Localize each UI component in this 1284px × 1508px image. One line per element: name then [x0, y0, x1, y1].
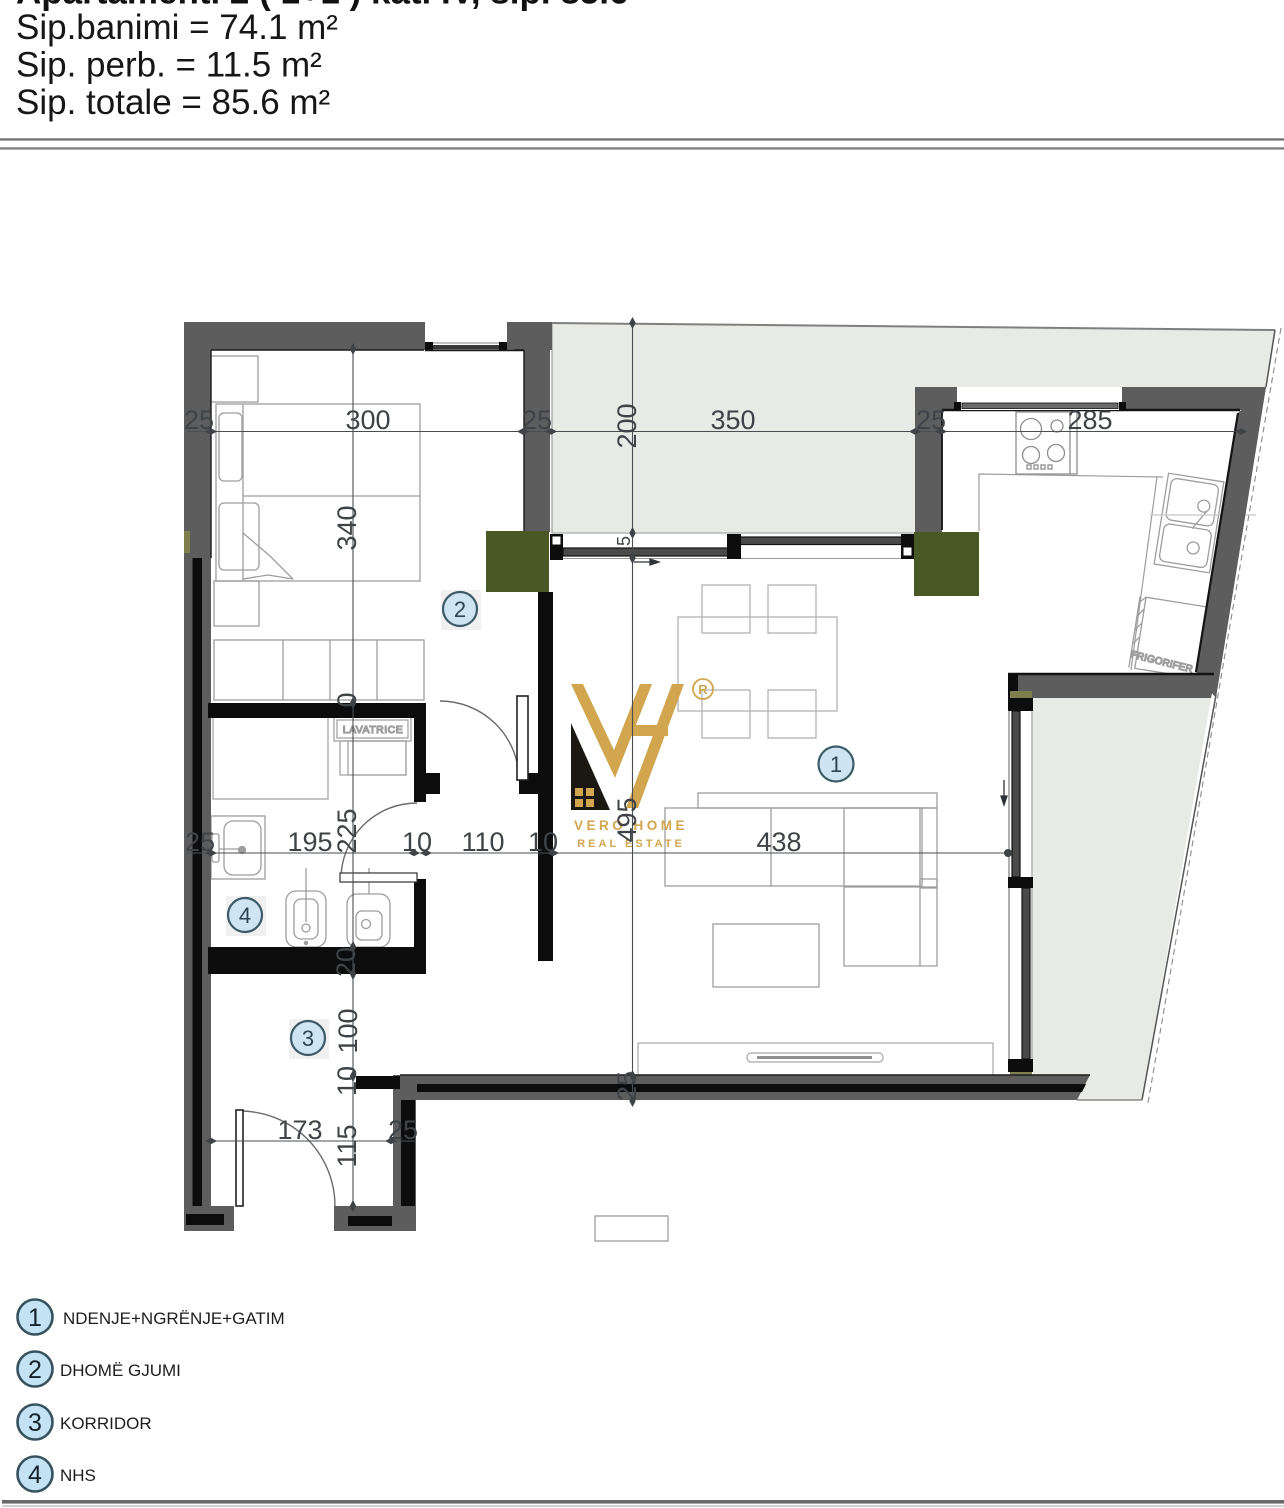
svg-text:25: 25	[612, 1071, 642, 1101]
svg-text:KORRIDOR: KORRIDOR	[60, 1414, 152, 1433]
svg-text:350: 350	[710, 405, 755, 435]
svg-text:25: 25	[388, 1115, 418, 1145]
svg-text:0: 0	[332, 692, 362, 707]
svg-text:10: 10	[332, 1066, 362, 1096]
svg-text:115: 115	[332, 1124, 362, 1167]
svg-text:Sip. perb. = 11.5 m²: Sip. perb. = 11.5 m²	[16, 46, 322, 85]
svg-text:3: 3	[302, 1026, 314, 1051]
svg-text:195: 195	[287, 827, 332, 857]
svg-text:R: R	[698, 682, 708, 697]
svg-text:10: 10	[528, 827, 558, 857]
svg-text:173: 173	[277, 1115, 322, 1145]
svg-text:100: 100	[333, 1008, 363, 1053]
svg-text:340: 340	[332, 505, 362, 550]
svg-text:Sip.banimi = 74.1 m²: Sip.banimi = 74.1 m²	[16, 8, 338, 47]
svg-text:3: 3	[28, 1409, 42, 1437]
svg-text:2: 2	[28, 1356, 42, 1384]
svg-text:DHOMË GJUMI: DHOMË GJUMI	[60, 1361, 181, 1380]
svg-text:495: 495	[612, 797, 642, 842]
svg-text:25: 25	[185, 827, 215, 857]
svg-text:10: 10	[402, 827, 432, 857]
svg-text:438: 438	[756, 827, 801, 857]
svg-text:NHS: NHS	[60, 1466, 96, 1485]
svg-text:FRIGORIFER: FRIGORIFER	[1129, 649, 1193, 675]
svg-text:2: 2	[454, 597, 466, 622]
svg-text:LAVATRICE: LAVATRICE	[343, 724, 404, 736]
svg-text:285: 285	[1067, 405, 1112, 435]
svg-text:25: 25	[184, 405, 214, 435]
svg-text:4: 4	[239, 903, 251, 928]
svg-text:1: 1	[28, 1304, 42, 1332]
svg-text:NDENJE+NGRËNJE+GATIM: NDENJE+NGRËNJE+GATIM	[63, 1309, 285, 1328]
svg-text:20: 20	[331, 947, 361, 977]
svg-text:25: 25	[522, 405, 552, 435]
svg-text:200: 200	[612, 403, 642, 448]
svg-text:1: 1	[830, 752, 842, 777]
svg-text:225: 225	[332, 808, 362, 853]
svg-text:300: 300	[345, 405, 390, 435]
svg-text:110: 110	[461, 827, 504, 857]
svg-text:Sip. totale = 85.6 m²: Sip. totale = 85.6 m²	[16, 83, 330, 122]
svg-text:25: 25	[916, 405, 946, 435]
svg-text:5: 5	[614, 536, 634, 546]
svg-text:4: 4	[28, 1461, 42, 1489]
